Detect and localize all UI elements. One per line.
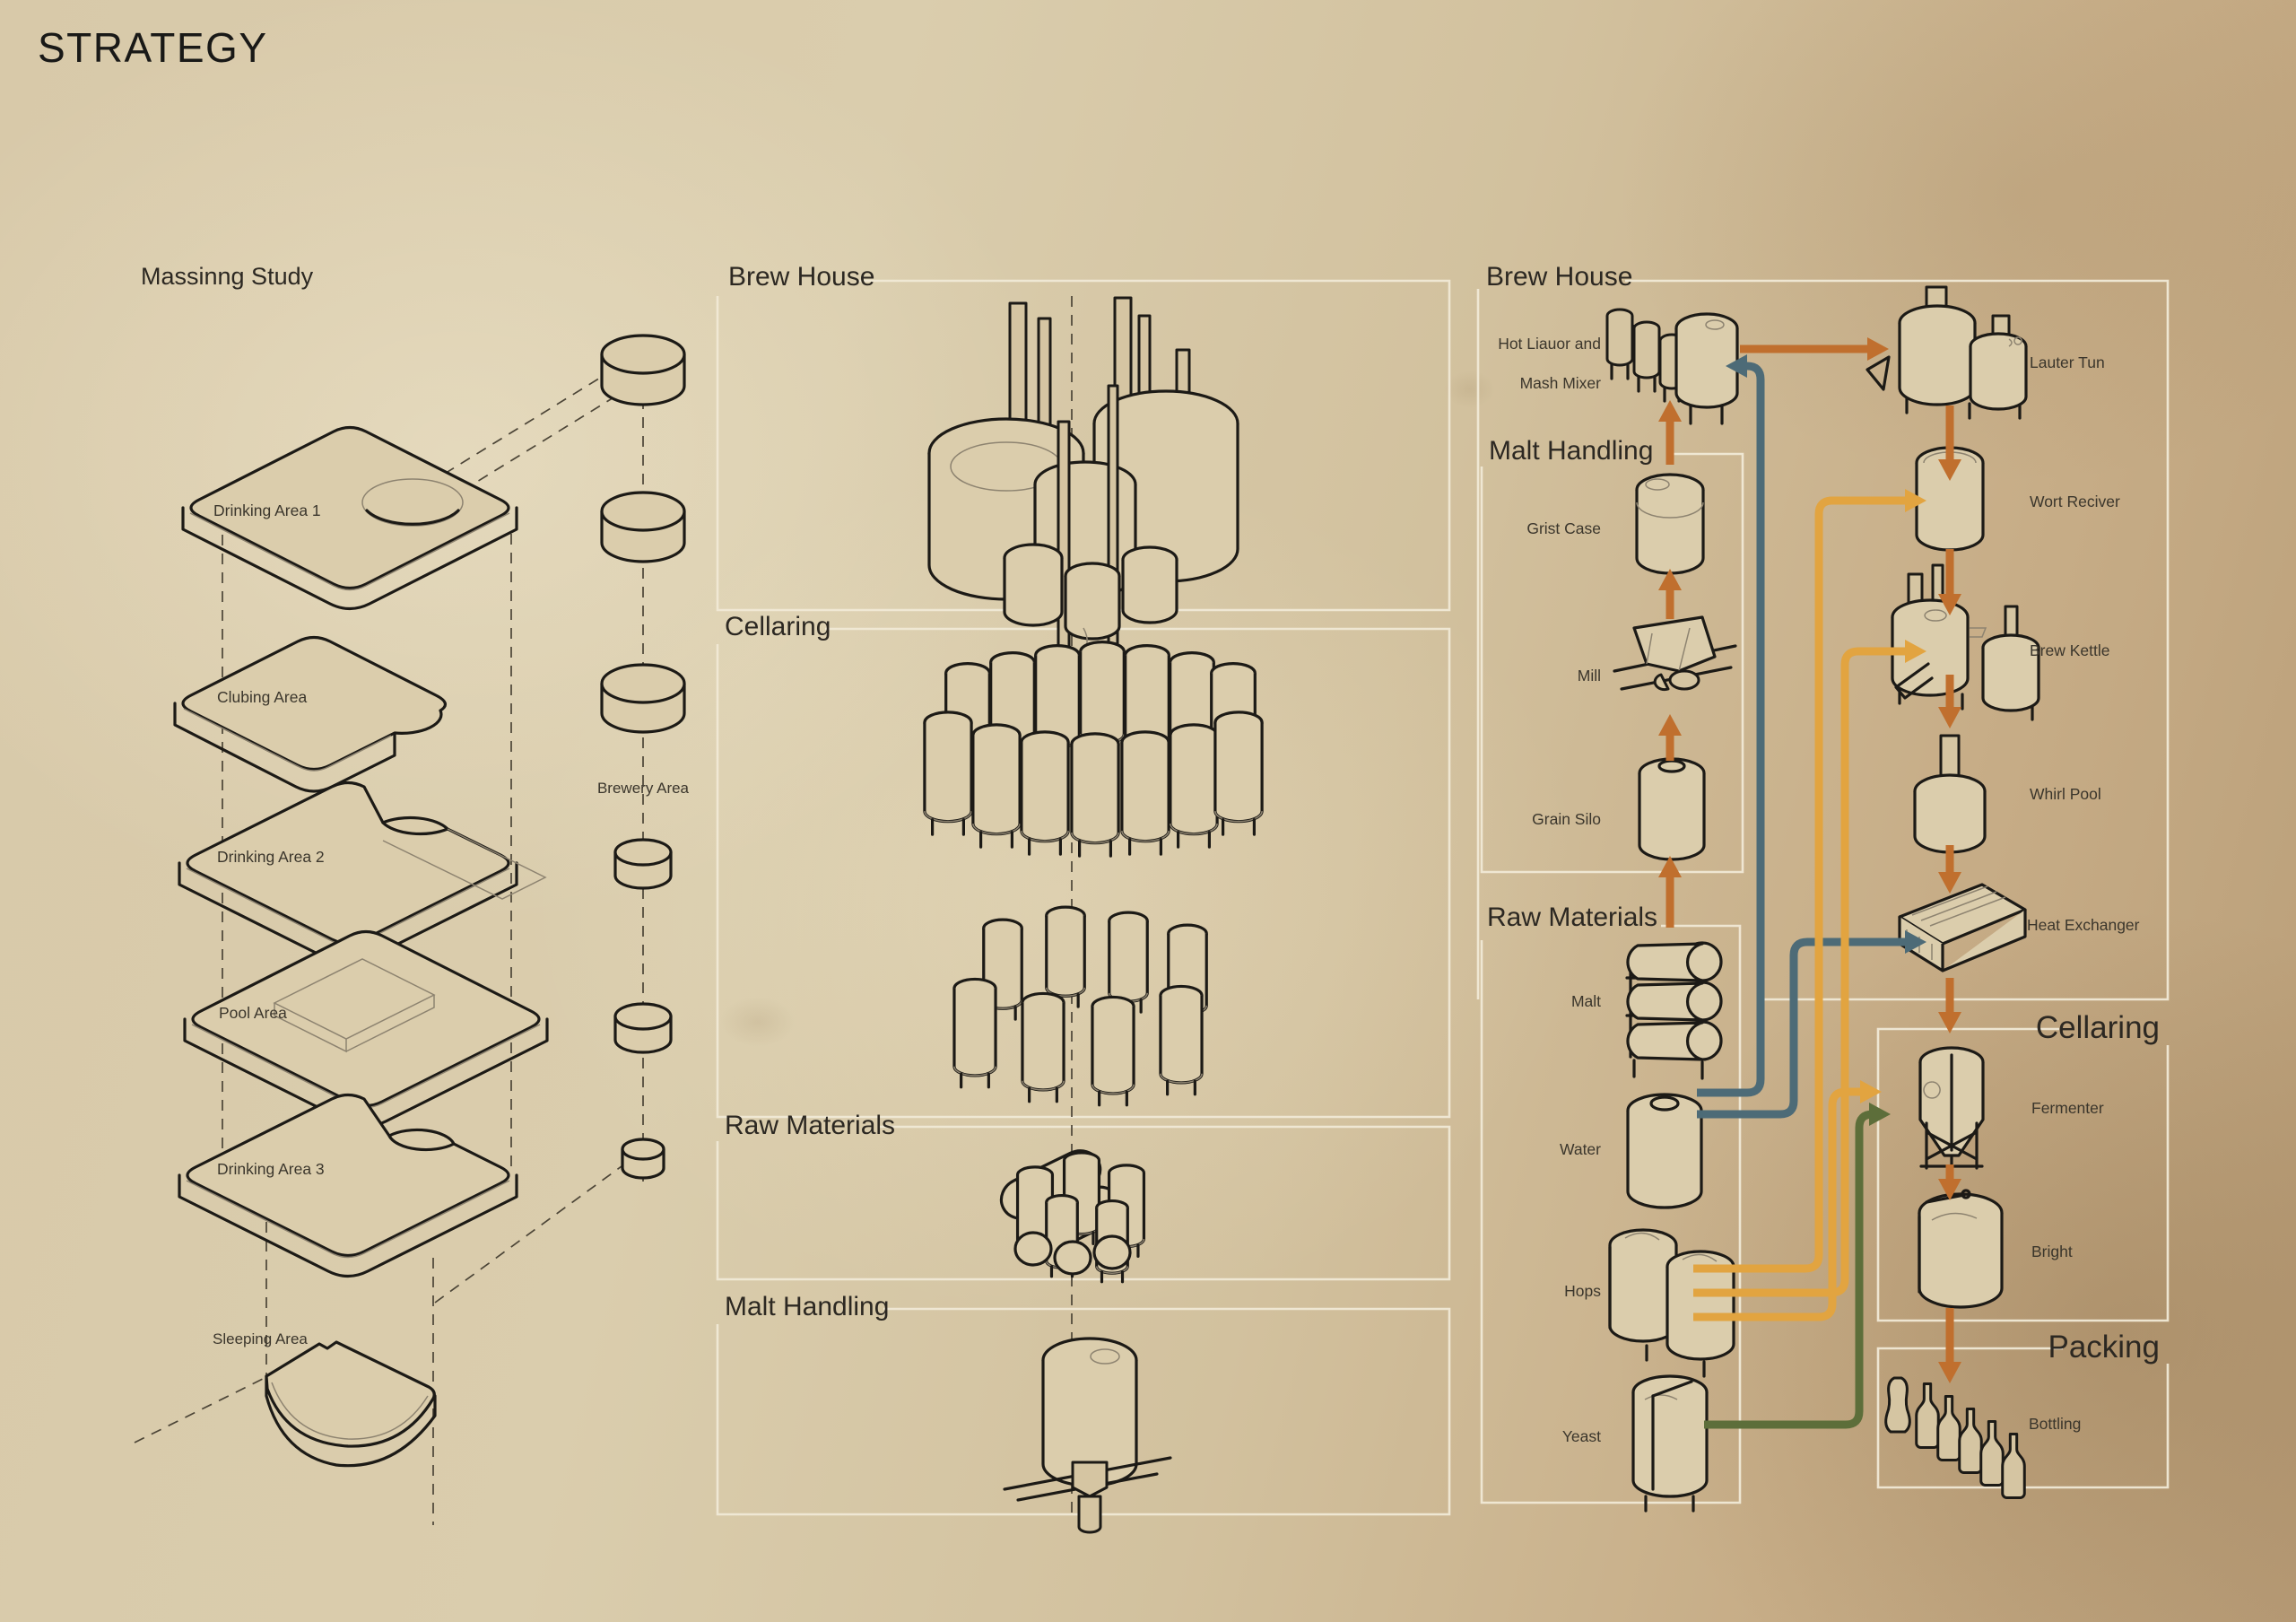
flow-title-brew-house: Brew House — [1486, 262, 1632, 292]
bright-label: Bright — [2031, 1242, 2073, 1261]
yeast-label: Yeast — [1471, 1426, 1601, 1446]
grain-silo-icon — [1639, 759, 1704, 859]
water-label: Water — [1471, 1139, 1601, 1159]
cellaring-illustration — [925, 642, 1262, 1105]
bright-tank-icon — [1919, 1190, 2002, 1307]
mixer-label-line1: Hot Liauor and — [1498, 335, 1601, 353]
cylinder-3 — [602, 665, 684, 732]
plate-pool-area — [185, 932, 547, 1127]
plate-label-sleeping-area: Sleeping Area — [213, 1330, 308, 1349]
cylinder-1 — [602, 336, 684, 405]
malt-icon — [1627, 943, 1721, 1078]
wort-reciver-label: Wort Reciver — [2030, 492, 2120, 511]
hops-label: Hops — [1471, 1281, 1601, 1301]
plate-clubing-area — [175, 638, 445, 792]
mixer-label: Hot Liauor and Mash Mixer — [1471, 334, 1601, 393]
flow-title-malt-handling: Malt Handling — [1489, 436, 1653, 467]
brew-kettle-label: Brew Kettle — [2030, 641, 2109, 660]
whirl-pool-icon — [1915, 736, 1985, 859]
mixer-label-line2: Mash Mixer — [1520, 374, 1601, 392]
plate-label-clubing-area: Clubing Area — [217, 687, 307, 707]
bottling-icon — [1886, 1378, 2025, 1498]
cylinder-4 — [615, 840, 671, 888]
heat-exchanger-icon — [1900, 885, 2025, 971]
overview-title-cellaring: Cellaring — [725, 612, 831, 642]
flow-title-raw-materials: Raw Materials — [1487, 903, 1657, 933]
flow-title-packing: Packing — [1973, 1330, 2160, 1365]
water-icon — [1628, 1094, 1701, 1208]
massing-study-heading: Massinng Study — [141, 263, 313, 291]
massing-plates-illustration — [175, 428, 547, 1466]
plate-drinking-area-3 — [179, 1095, 517, 1277]
heat-exchanger-label: Heat Exchanger — [2027, 915, 2140, 935]
grain-silo-label: Grain Silo — [1471, 809, 1601, 829]
flow-title-cellaring: Cellaring — [1973, 1010, 2160, 1046]
overview-title-raw-materials: Raw Materials — [725, 1111, 895, 1141]
whirl-pool-label: Whirl Pool — [2030, 784, 2101, 804]
malt-handling-illustration — [1004, 1339, 1170, 1532]
lauter-tun-icon — [1867, 287, 2026, 418]
raw-materials-illustration — [995, 1143, 1144, 1282]
brew-kettle-icon — [1892, 565, 2039, 719]
cylinder-6 — [622, 1139, 664, 1178]
cellaring-round-tanks — [954, 907, 1206, 1105]
fermenter-label: Fermenter — [2031, 1098, 2104, 1118]
diagram-artwork — [0, 0, 2296, 1622]
overview-title-brew-house: Brew House — [728, 262, 874, 292]
grist-case-label: Grist Case — [1471, 519, 1601, 538]
cellaring-tall-tanks — [925, 642, 1262, 857]
malt-label: Malt — [1471, 991, 1601, 1011]
plate-label-drinking-area-1: Drinking Area 1 — [213, 501, 321, 520]
strategy-poster: STRATEGY Massinng Study Drinking Area 1 … — [0, 0, 2296, 1622]
mill-icon — [1614, 617, 1735, 690]
plate-label-pool-area: Pool Area — [219, 1003, 287, 1023]
bottling-label: Bottling — [2029, 1414, 2081, 1434]
cylinder-5 — [615, 1004, 671, 1052]
yeast-icon — [1633, 1376, 1707, 1511]
cylinder-2 — [602, 493, 684, 562]
grist-case-icon — [1637, 475, 1703, 573]
hops-icon — [1610, 1230, 1734, 1376]
plate-label-drinking-area-2: Drinking Area 2 — [217, 847, 325, 867]
plate-sleeping-area — [266, 1342, 435, 1466]
brewery-area-label: Brewery Area — [589, 779, 697, 798]
brew-house-illustration — [929, 298, 1238, 691]
overview-title-malt-handling: Malt Handling — [725, 1292, 889, 1322]
plate-label-drinking-area-3: Drinking Area 3 — [217, 1159, 325, 1179]
mill-label: Mill — [1471, 666, 1601, 685]
page-title: STRATEGY — [38, 23, 268, 72]
lauter-tun-label: Lauter Tun — [2030, 353, 2105, 372]
fermenter-icon — [1920, 1048, 1983, 1173]
